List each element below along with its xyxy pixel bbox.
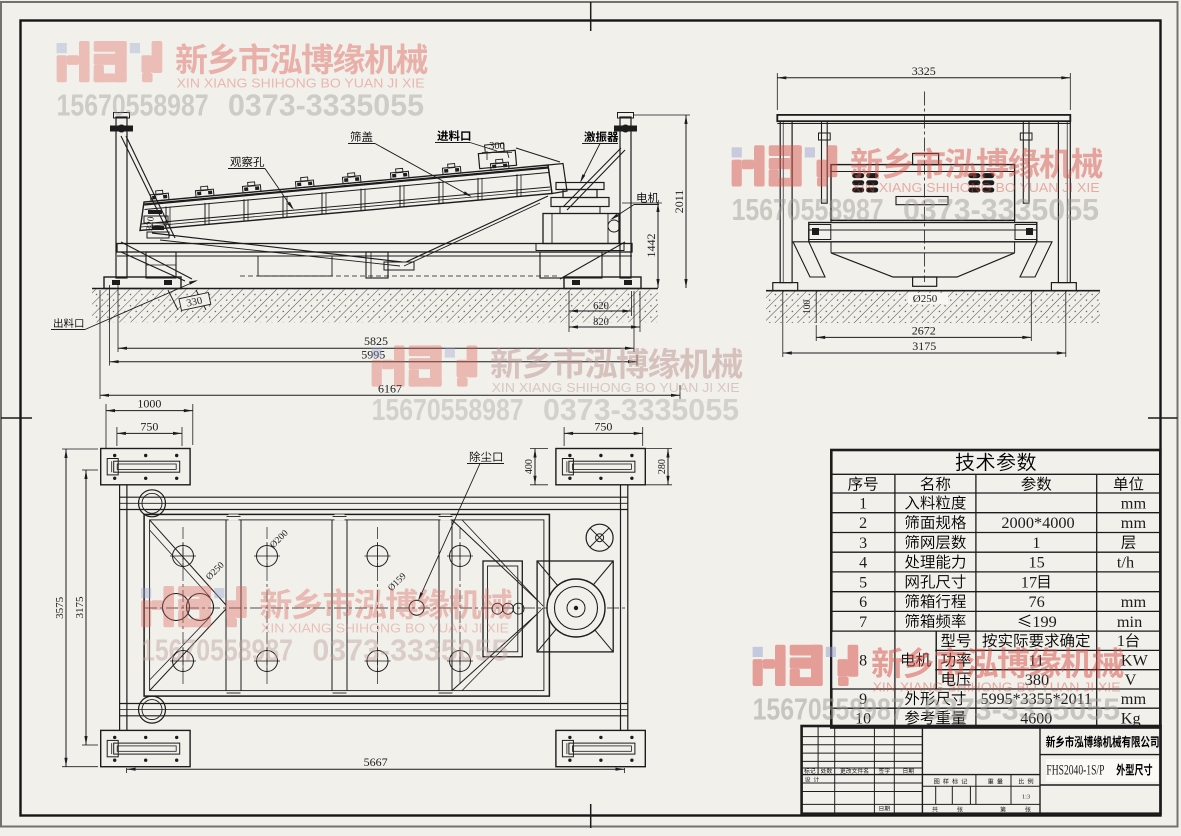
svg-text:1000: 1000	[137, 397, 161, 411]
svg-text:0373-3335055: 0373-3335055	[228, 88, 424, 123]
svg-text:t/h: t/h	[1117, 553, 1134, 572]
svg-text:76: 76	[1029, 592, 1045, 611]
svg-text:15670558987: 15670558987	[753, 691, 905, 726]
svg-text:1: 1	[1117, 631, 1125, 650]
svg-text:2: 2	[859, 515, 867, 532]
svg-text:3175: 3175	[912, 339, 936, 353]
svg-text:400: 400	[524, 459, 535, 474]
svg-text:8: 8	[859, 653, 867, 670]
svg-text:Ø250: Ø250	[913, 293, 938, 305]
svg-text:1: 1	[1032, 533, 1040, 552]
svg-text:5: 5	[859, 574, 867, 591]
svg-text:5825: 5825	[364, 334, 388, 348]
svg-text:mm: mm	[1121, 513, 1147, 532]
svg-text:199: 199	[1032, 612, 1056, 631]
svg-text:3: 3	[859, 535, 867, 552]
svg-text:Kg: Kg	[1121, 708, 1141, 727]
svg-text:750: 750	[140, 419, 158, 433]
svg-text:15670558987: 15670558987	[141, 633, 293, 668]
svg-text:2672: 2672	[912, 323, 936, 337]
svg-text:15670558987: 15670558987	[372, 392, 524, 427]
svg-text:0373-3335055: 0373-3335055	[903, 192, 1099, 227]
svg-text:FHS2040-1S/P: FHS2040-1S/P	[1046, 763, 1104, 779]
svg-text:15670558987: 15670558987	[57, 88, 209, 123]
svg-text:15670558987: 15670558987	[732, 192, 884, 227]
svg-text:280: 280	[657, 459, 668, 474]
svg-text:3575: 3575	[54, 596, 66, 619]
svg-text:mm: mm	[1121, 493, 1147, 512]
svg-text:300: 300	[489, 141, 505, 152]
svg-text:320: 320	[145, 216, 157, 232]
svg-text:4: 4	[859, 555, 867, 572]
svg-text:2000*4000: 2000*4000	[1001, 513, 1074, 532]
svg-text:5667: 5667	[364, 755, 388, 769]
svg-text:15: 15	[1029, 553, 1045, 572]
svg-text:0373-3335055: 0373-3335055	[543, 392, 739, 427]
svg-text:620: 620	[593, 301, 609, 312]
svg-text:820: 820	[593, 317, 609, 328]
svg-text:17: 17	[1021, 572, 1037, 591]
svg-text:min: min	[1117, 612, 1142, 631]
svg-text:1:3: 1:3	[1022, 794, 1030, 801]
svg-text:100: 100	[803, 300, 813, 315]
svg-text:1: 1	[859, 495, 867, 512]
svg-text:3175: 3175	[74, 596, 86, 619]
svg-text:1442: 1442	[644, 234, 658, 258]
svg-text:mm: mm	[1121, 689, 1147, 708]
svg-text:0373-3335055: 0373-3335055	[924, 691, 1120, 726]
svg-text:2011: 2011	[672, 190, 686, 214]
svg-text:mm: mm	[1121, 592, 1147, 611]
svg-text:KW: KW	[1121, 651, 1149, 670]
svg-text:0373-3335055: 0373-3335055	[312, 633, 508, 668]
svg-text:V: V	[1125, 670, 1137, 689]
svg-text:7: 7	[859, 614, 867, 631]
svg-text:3325: 3325	[912, 64, 936, 78]
svg-text:6: 6	[859, 594, 867, 611]
